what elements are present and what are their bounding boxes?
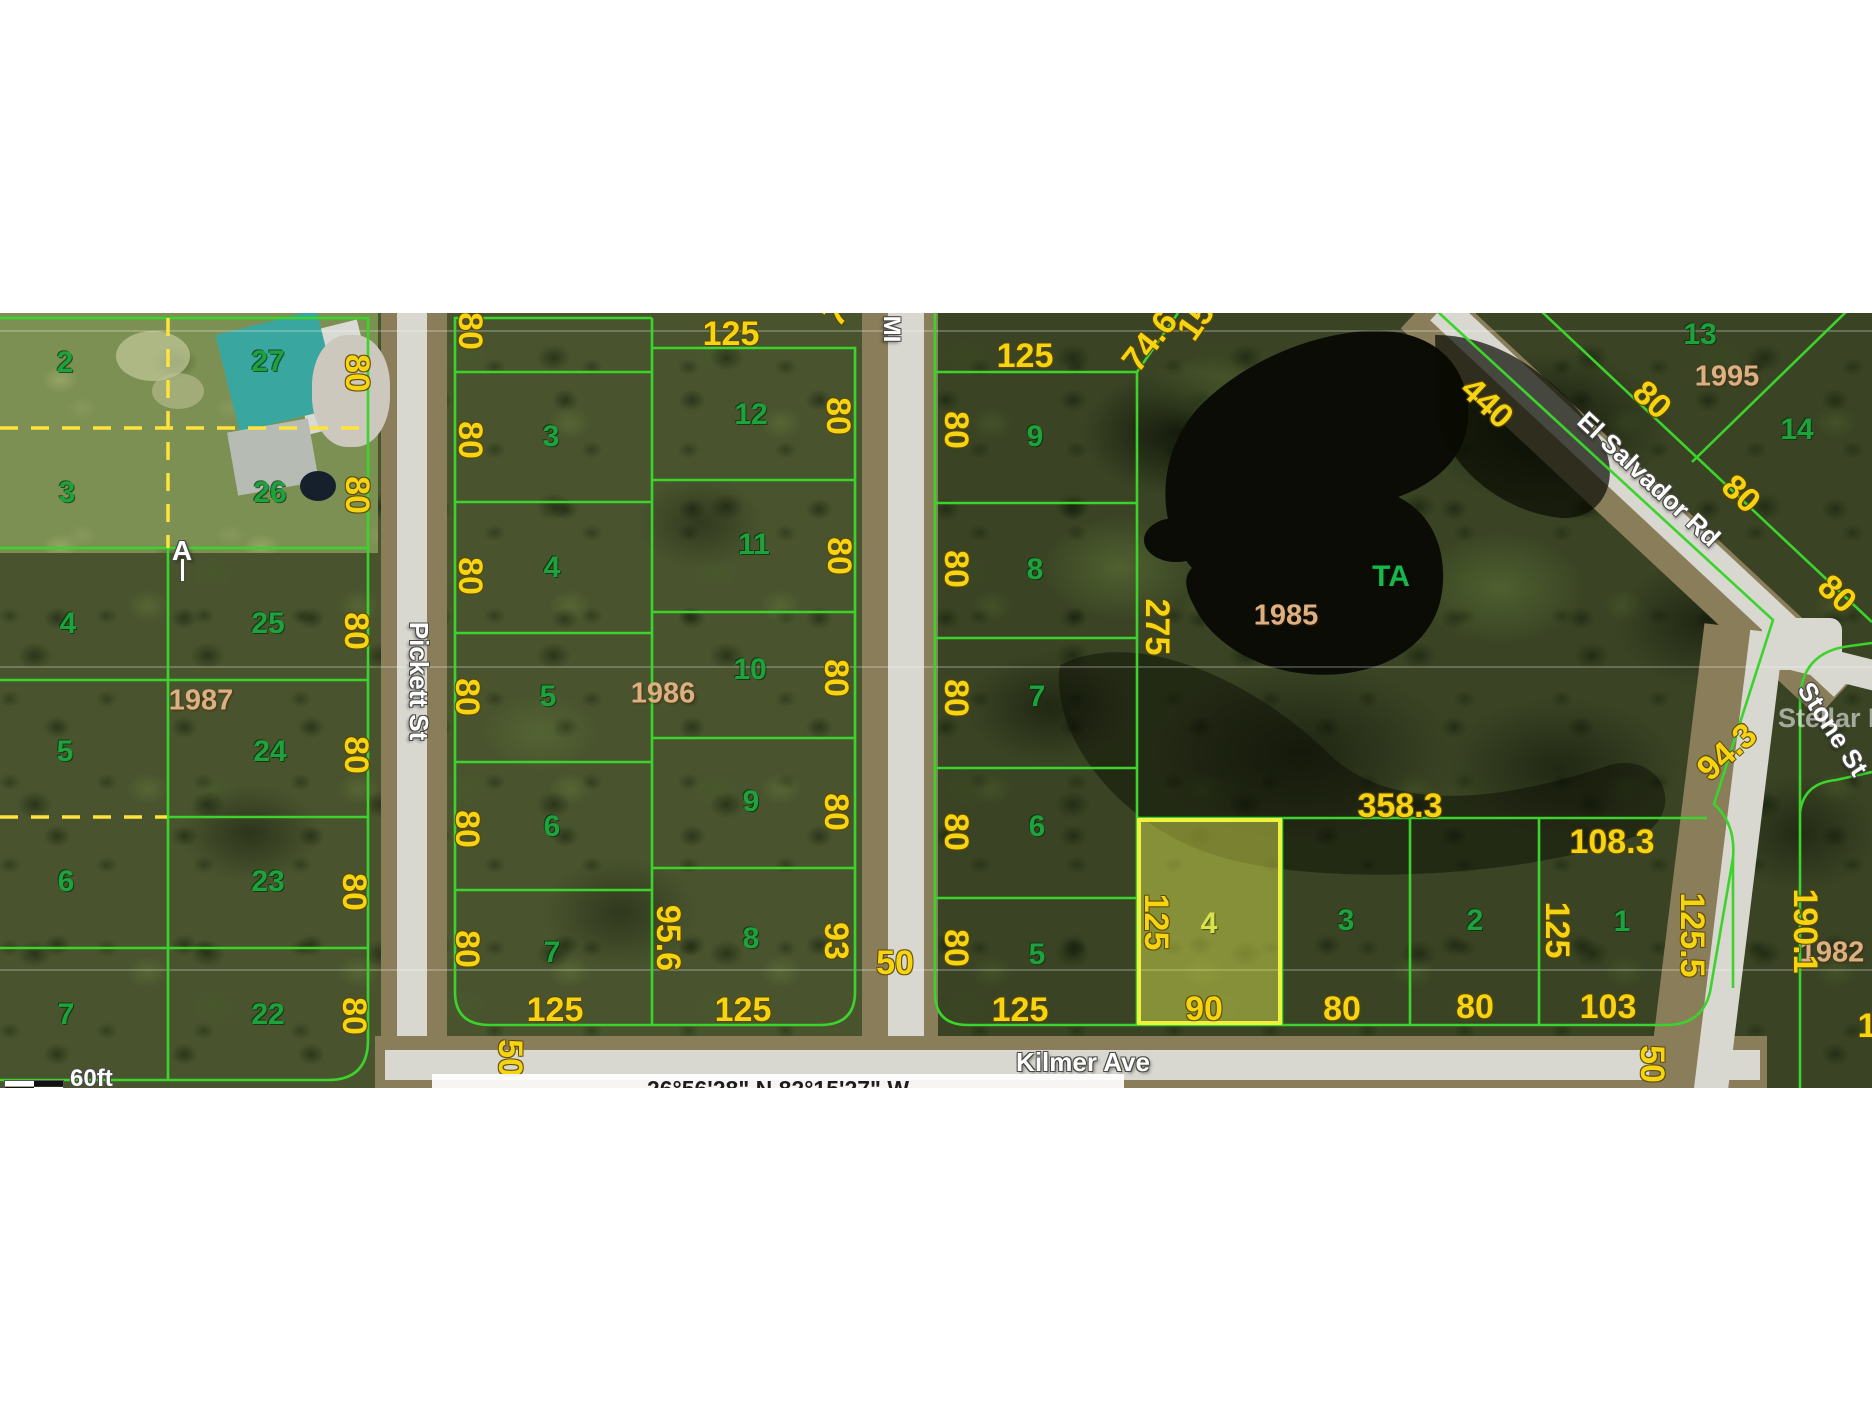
- scale-label: 60ft: [70, 1065, 113, 1088]
- parcel-linework: [0, 313, 1872, 1088]
- scale-bar-segments: [4, 1080, 64, 1088]
- coordinate-readout: 26°56'28" N 82°15'27" W: [432, 1074, 1124, 1088]
- lake-arm: [1144, 518, 1208, 562]
- block-1986-lines: [455, 318, 855, 1025]
- subject-parcel-4[interactable]: [1137, 818, 1282, 1025]
- block-1987-dashed-lines: [0, 318, 368, 817]
- lake: [1165, 331, 1468, 675]
- dense-trees-ne: [1435, 335, 1610, 518]
- screenshot-page: 2273264255246237228080808080801987A34567…: [0, 0, 1872, 1404]
- block-1987-lines: [0, 318, 368, 1080]
- plat-map-viewport[interactable]: 2273264255246237228080808080801987A34567…: [0, 313, 1872, 1088]
- stellar-mls-watermark: Stellar MLS: [1778, 703, 1872, 734]
- scale-bar: 60ft: [4, 1065, 113, 1088]
